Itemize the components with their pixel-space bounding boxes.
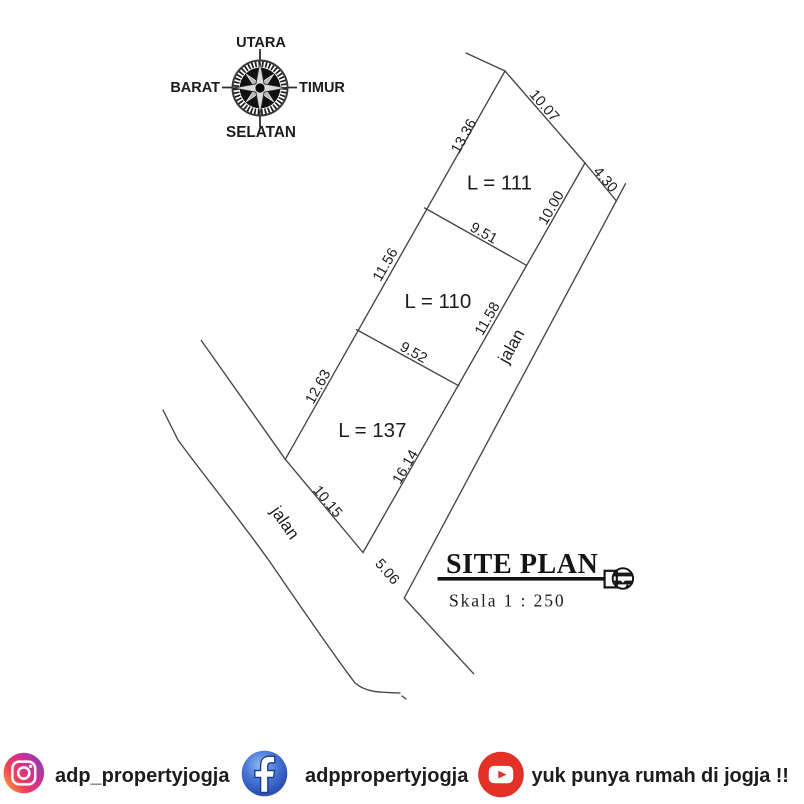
svg-text:TIMUR: TIMUR [299,80,345,96]
svg-text:UTARA: UTARA [236,35,286,51]
svg-text:SITE PLAN: SITE PLAN [446,549,598,580]
svg-text:L = 111: L = 111 [467,172,532,195]
svg-text:Skala 1 : 250: Skala 1 : 250 [449,591,566,611]
svg-text:yuk punya rumah di jogja !!: yuk punya rumah di jogja !! [532,765,789,787]
svg-text:adppropertyjogja: adppropertyjogja [305,765,469,787]
svg-text:BARAT: BARAT [170,80,220,96]
svg-text:SELATAN: SELATAN [226,124,296,141]
svg-text:L = 110: L = 110 [405,290,472,313]
svg-text:adp_propertyjogja: adp_propertyjogja [55,765,230,787]
svg-text:L = 137: L = 137 [338,419,406,442]
